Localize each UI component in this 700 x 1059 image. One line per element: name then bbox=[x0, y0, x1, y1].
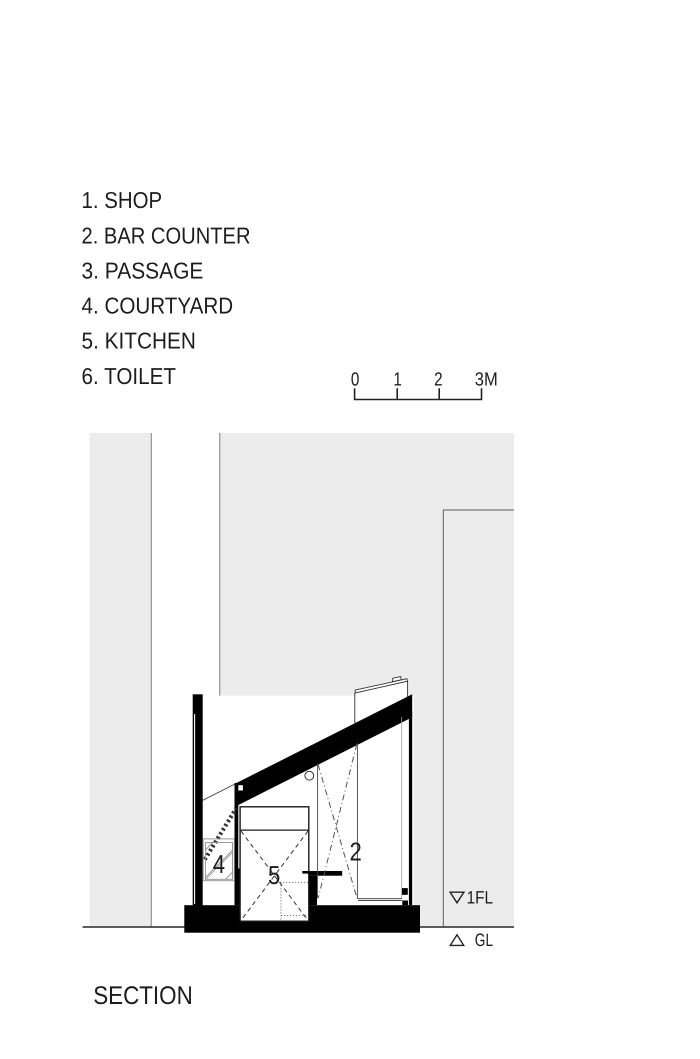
svg-text:1: 1 bbox=[393, 369, 401, 390]
svg-text:1. SHOP: 1. SHOP bbox=[82, 187, 163, 213]
svg-text:3. PASSAGE: 3. PASSAGE bbox=[82, 257, 204, 283]
svg-text:2. BAR COUNTER: 2. BAR COUNTER bbox=[82, 222, 251, 248]
svg-text:4. COURTYARD: 4. COURTYARD bbox=[82, 292, 234, 318]
svg-text:4: 4 bbox=[213, 849, 225, 879]
svg-text:6. TOILET: 6. TOILET bbox=[82, 363, 177, 389]
svg-text:1FL: 1FL bbox=[467, 887, 493, 907]
svg-text:GL: GL bbox=[475, 930, 493, 950]
svg-text:5: 5 bbox=[268, 860, 280, 890]
svg-text:2: 2 bbox=[349, 836, 361, 866]
svg-text:5. KITCHEN: 5. KITCHEN bbox=[82, 327, 196, 353]
svg-text:2: 2 bbox=[434, 369, 442, 390]
svg-text:SECTION: SECTION bbox=[93, 982, 193, 1010]
svg-text:3M: 3M bbox=[475, 369, 498, 390]
svg-text:0: 0 bbox=[351, 369, 359, 390]
